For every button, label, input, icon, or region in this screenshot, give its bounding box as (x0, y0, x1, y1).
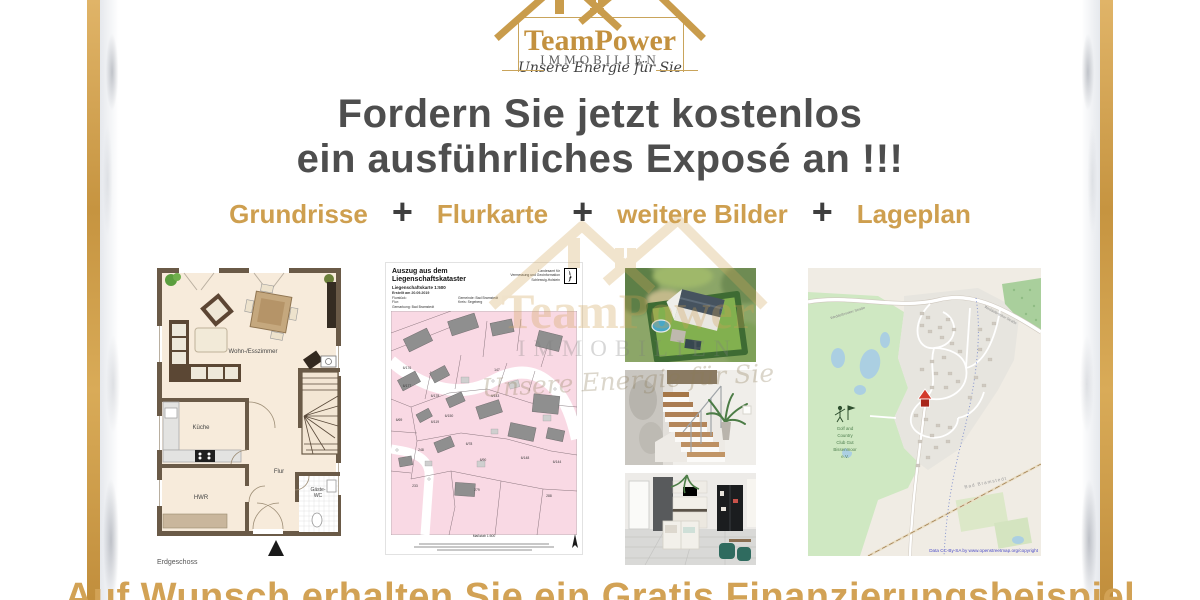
flurkarte-header: Auszug aus dem Liegenschaftskataster Lie… (386, 263, 582, 311)
plus-icon: + (572, 194, 593, 230)
svg-text:6/148: 6/148 (521, 456, 530, 460)
features-row: Grundrisse + Flurkarte + weitere Bilder … (0, 198, 1200, 230)
flurkarte-title: Auszug aus dem (392, 268, 466, 276)
svg-text:248: 248 (418, 448, 424, 452)
stairs (302, 372, 338, 454)
svg-text:279: 279 (474, 488, 480, 492)
agency-name: Schleswig-Holstein (510, 278, 560, 282)
fridge (717, 485, 743, 531)
photo-aerial (625, 268, 756, 362)
svg-text:e.V.: e.V. (841, 454, 848, 459)
svg-text:233: 233 (412, 484, 418, 488)
svg-text:6/90: 6/90 (480, 458, 487, 462)
main-headline: Fordern Sie jetzt kostenlos ein ausführl… (0, 92, 1200, 182)
headline-line1: Fordern Sie jetzt kostenlos (0, 92, 1200, 137)
brand-roof-icon (497, 0, 703, 40)
feature-weitere-bilder: weitere Bilder (617, 199, 788, 230)
agency-emblem-icon (564, 268, 577, 284)
flurkarte-footer: Maßstab 1:500 (386, 524, 582, 553)
svg-text:4/143: 4/143 (491, 394, 500, 398)
frame-gold-left (87, 0, 100, 600)
brand-tagline: Unsere Energie für Sie (460, 60, 740, 76)
feature-lageplan: Lageplan (857, 199, 971, 230)
flurkarte-scale: Maßstab 1:500 (473, 534, 496, 538)
meta-gemarkung: Gemarkung: Bad Bramstedt (392, 305, 434, 309)
room-label-kitchen: Küche (192, 425, 210, 431)
room-label-wc: WC (314, 493, 323, 499)
svg-text:Country: Country (837, 433, 853, 438)
flyer-canvas: TeamPower IMMOBILIEN Unsere Energie für … (0, 0, 1200, 600)
hwr-cabinet (163, 514, 227, 528)
svg-text:Golf and: Golf and (837, 426, 854, 431)
photo-kitchen (625, 473, 756, 565)
tagline-rule-right (656, 70, 698, 71)
headline-line2: ein ausführliches Exposé an !!! (0, 137, 1200, 182)
svg-text:6/78: 6/78 (466, 442, 473, 446)
flurkarte-created: Erstellt am 20.09.2019 (392, 291, 429, 295)
floorplan-image: Wohn-/Esszimmer Küche Flur HWR Gäste- WC… (157, 268, 341, 568)
wc-floor (299, 476, 338, 532)
svg-text:6/144: 6/144 (553, 460, 562, 464)
window (747, 479, 756, 527)
plus-icon: + (812, 194, 833, 230)
north-arrow-icon (268, 540, 284, 556)
marble-texture-left (100, 0, 122, 600)
svg-text:6/69: 6/69 (396, 418, 403, 422)
floorplan-caption: Erdgeschoss (157, 559, 197, 566)
compass-needle-icon (571, 534, 579, 550)
svg-text:288: 288 (546, 494, 552, 498)
kitchen-island (663, 521, 699, 549)
door (629, 481, 649, 529)
svg-text:Club Gut: Club Gut (836, 440, 854, 445)
flurkarte-map: 6/176 6/177 6/178 6/150 6/119 6/78 147 4… (391, 311, 577, 535)
frame-gold-right (1100, 0, 1113, 600)
coffee-table (195, 328, 227, 352)
svg-text:6/178: 6/178 (431, 394, 440, 398)
plus-icon: + (392, 194, 413, 230)
photo-staircase (625, 370, 756, 465)
flurkarte-title: Liegenschaftskataster (392, 276, 466, 284)
fineprint-line (414, 546, 554, 548)
osm-copyright: Data CC-By-SA by www.openstreetmap.org/c… (929, 548, 1038, 553)
feature-grundrisse: Grundrisse (229, 199, 368, 230)
feature-flurkarte: Flurkarte (437, 199, 548, 230)
lageplan-map: Golf and Country Club Gut Bissenmoor e.V… (808, 268, 1041, 556)
fineprint-line (437, 549, 532, 551)
wall-unit (327, 282, 336, 328)
meta-kreis: Kreis: Segeberg (458, 300, 498, 304)
svg-text:147: 147 (494, 368, 500, 372)
marble-texture-right (1078, 0, 1100, 600)
svg-text:6/176: 6/176 (403, 366, 412, 370)
fineprint-line (419, 543, 549, 545)
footer-offer-text: Auf Wunsch erhalten Sie ein Gratis Finan… (0, 576, 1200, 600)
room-label-living: Wohn-/Esszimmer (229, 349, 278, 355)
flurkarte-document: Auszug aus dem Liegenschaftskataster Lie… (385, 262, 583, 555)
tagline-rule-left (502, 70, 544, 71)
svg-text:6/150: 6/150 (445, 414, 454, 418)
flurkarte-subtitle: Liegenschaftskarte 1:500 (392, 285, 446, 290)
room-label-hall: Flur (274, 469, 284, 475)
svg-text:6/119: 6/119 (431, 420, 439, 424)
room-label-utility: HWR (194, 495, 209, 501)
agency-name: Vermessung und Geoinformation (510, 273, 560, 277)
svg-text:6/177: 6/177 (403, 384, 412, 388)
svg-text:Bissenmoor: Bissenmoor (833, 447, 857, 452)
